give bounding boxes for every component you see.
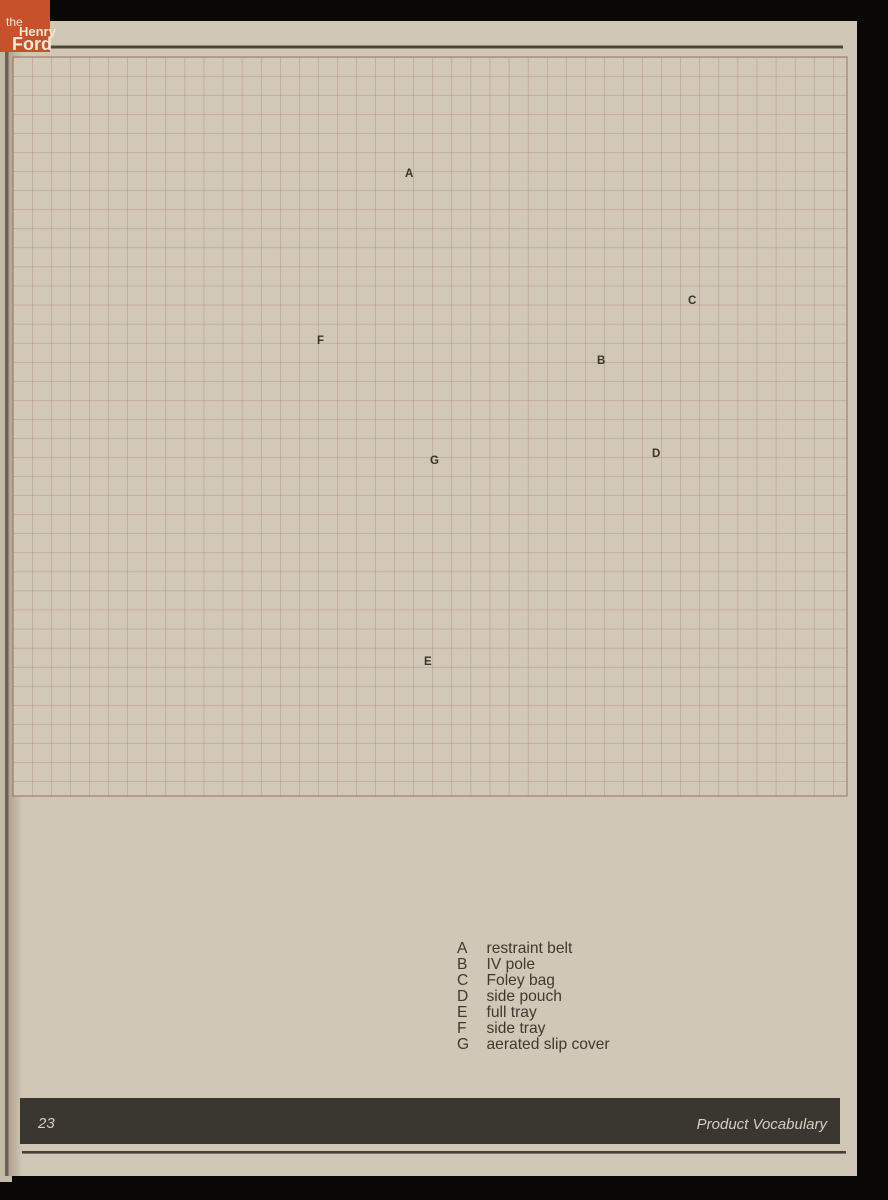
svg-text:B: B (597, 355, 605, 367)
svg-text:E: E (424, 656, 432, 668)
svg-text:G: G (430, 455, 439, 467)
svg-text:23: 23 (37, 1115, 55, 1132)
svg-text:F: F (317, 335, 324, 347)
svg-text:D: D (652, 448, 660, 460)
svg-text:C: C (688, 295, 696, 307)
svg-text:Ford: Ford (12, 34, 52, 54)
svg-text:Product Vocabulary: Product Vocabulary (697, 1116, 829, 1133)
svg-text:A: A (405, 168, 413, 180)
